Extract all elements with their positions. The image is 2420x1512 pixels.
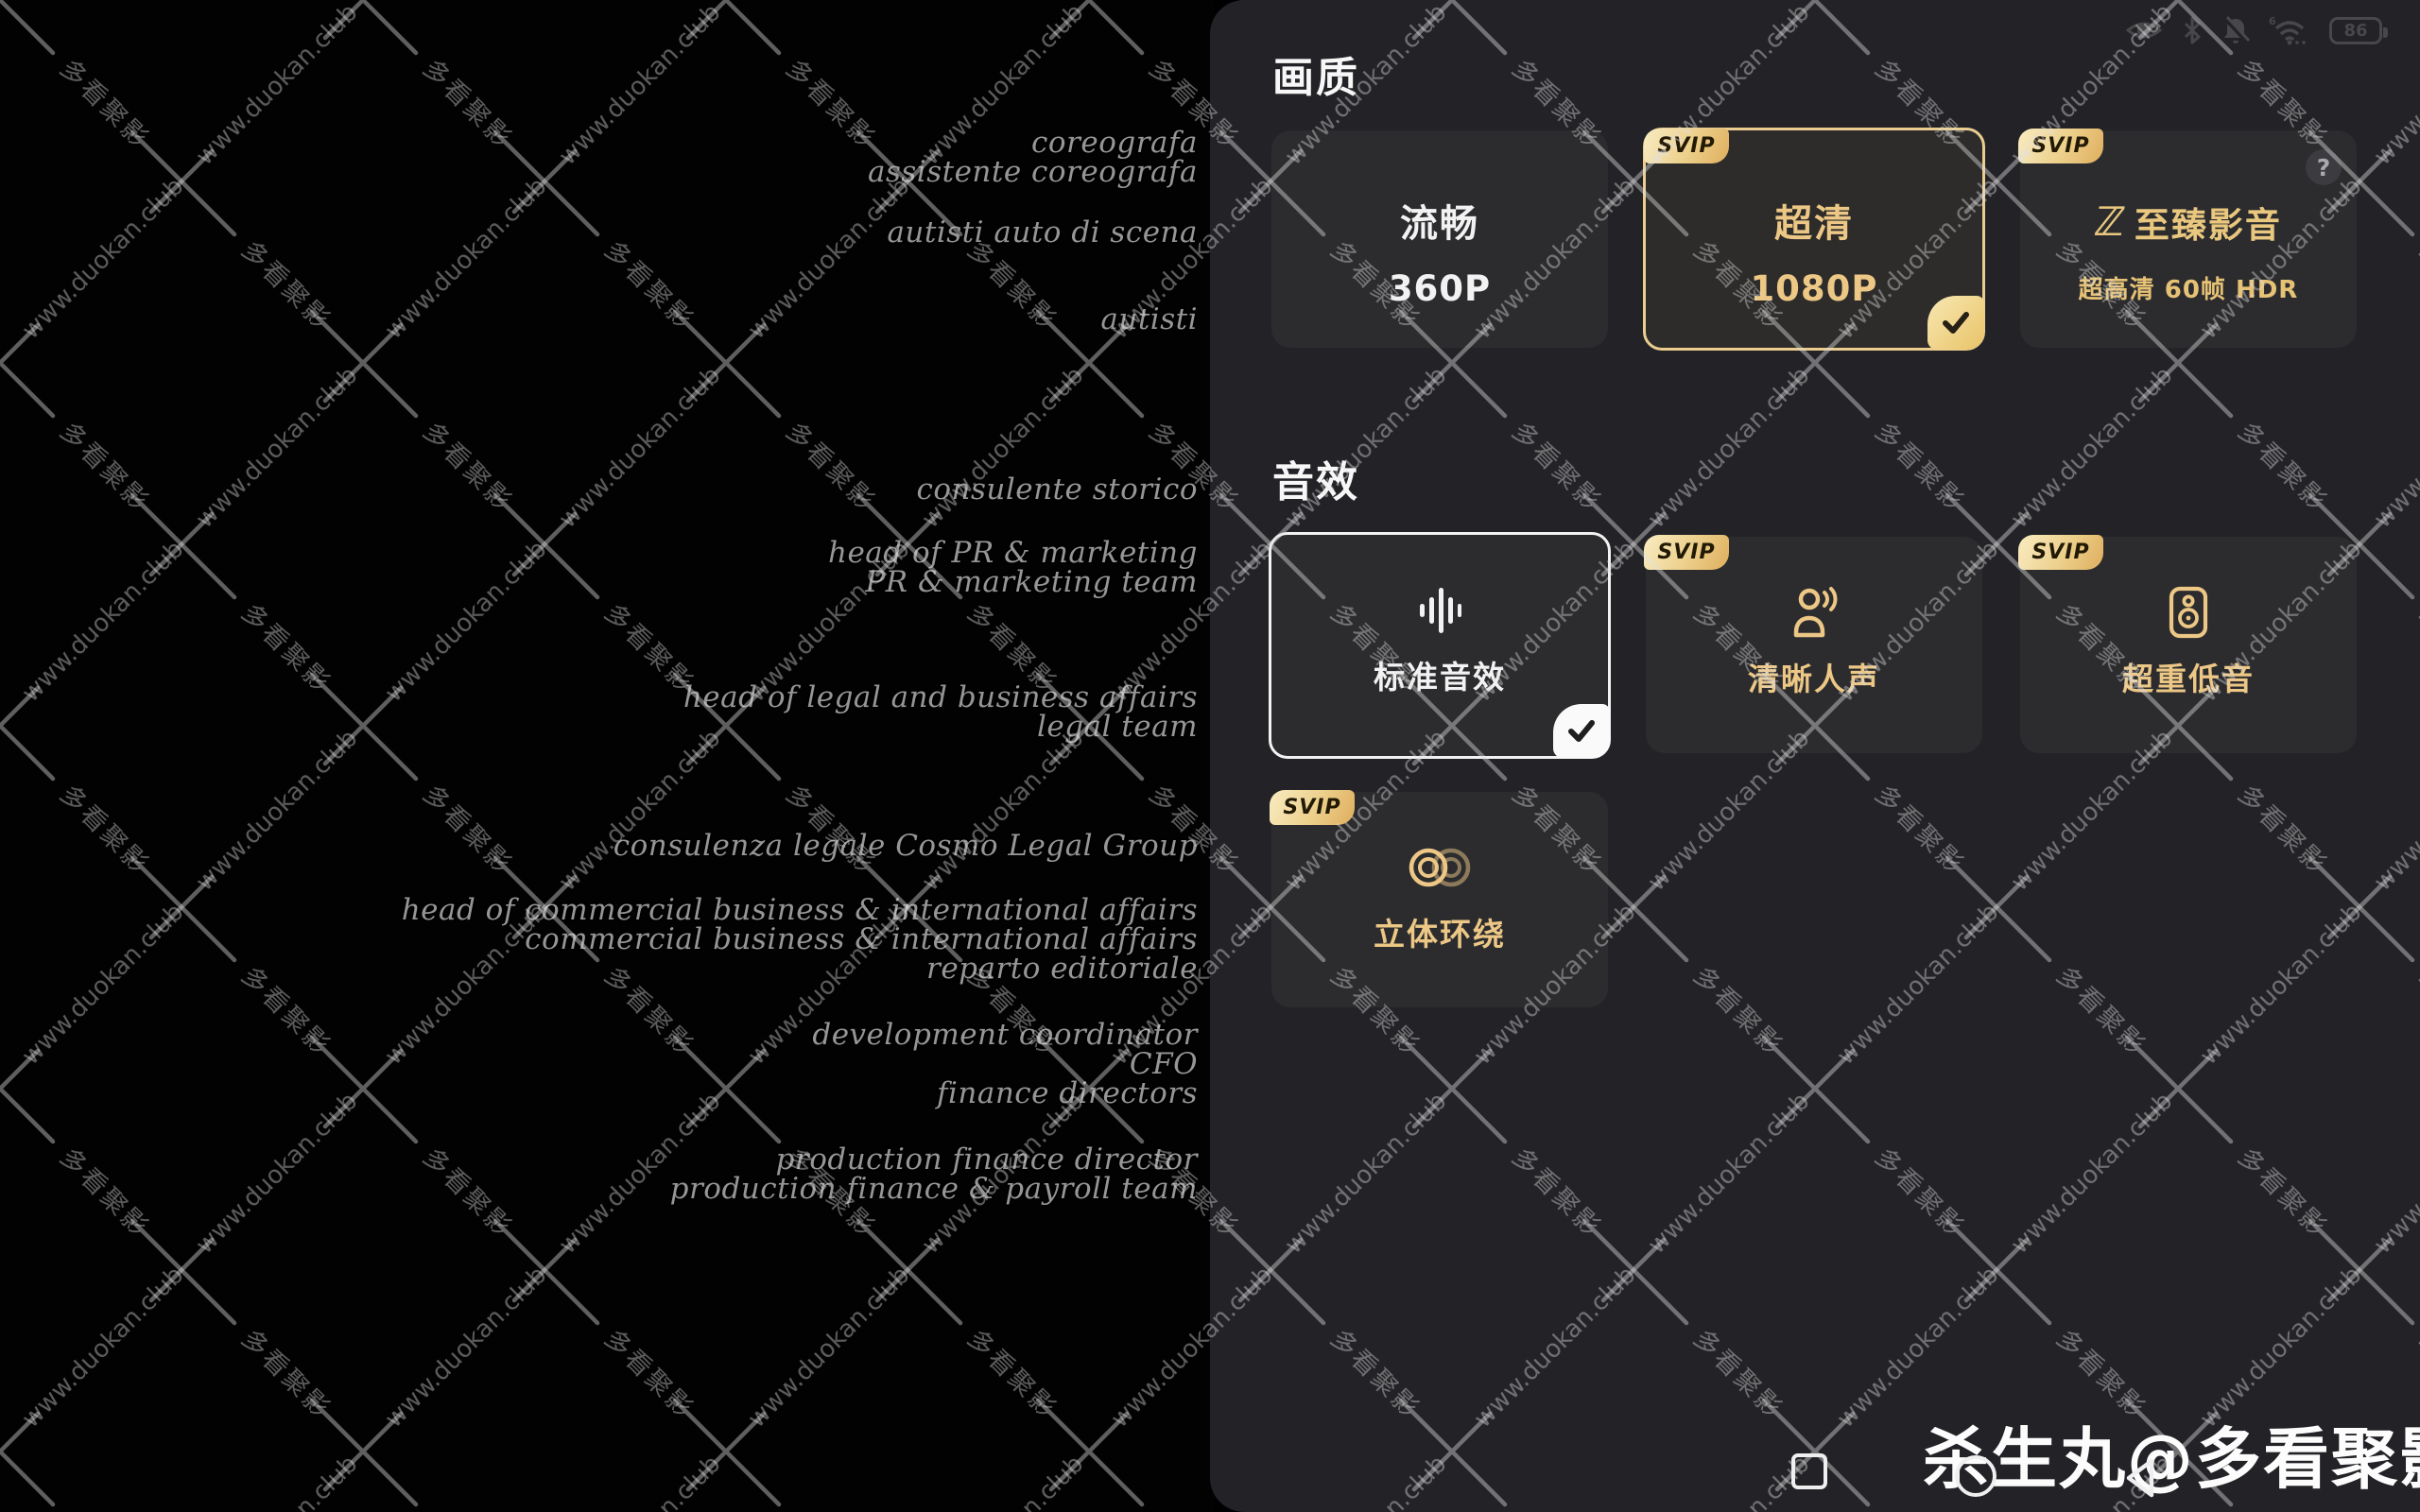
credit-group: consulente storico: [347, 475, 1198, 505]
quality-card-label: 超清: [1774, 193, 1854, 248]
credit-line: development coordinator: [347, 1021, 1198, 1050]
help-icon[interactable]: ?: [2306, 149, 2342, 185]
quality-card-label: 流畅: [1400, 193, 1479, 248]
audio-card-label: 立体环绕: [1374, 909, 1506, 954]
quality-card-sublabel: 1080P: [1750, 268, 1877, 309]
audio-card-label: 清晰人声: [1748, 654, 1880, 699]
credit-group: autisti: [347, 305, 1198, 335]
audio-card-super-bass[interactable]: SVIP 超重低音: [2020, 537, 2357, 753]
credit-group: coreografaassistente coreografa: [347, 129, 1198, 187]
selected-check-icon: [1553, 704, 1610, 758]
surround-rings-icon: [1404, 839, 1476, 896]
svip-badge: SVIP: [1270, 790, 1355, 825]
credit-group: production finance directorproduction fi…: [347, 1145, 1198, 1204]
credit-line: legal team: [347, 713, 1198, 742]
credit-line: reparto editoriale: [347, 954, 1198, 984]
credit-line: head of commercial business & internatio…: [347, 896, 1198, 925]
quality-card-360p[interactable]: 流畅 360P: [1271, 130, 1608, 348]
credit-group: head of legal and business affairslegal …: [347, 683, 1198, 742]
svip-badge: SVIP: [2018, 535, 2103, 570]
credit-line: consulente storico: [347, 475, 1198, 505]
quality-card-1080p-selected[interactable]: SVIP 超清 1080P: [1643, 128, 1985, 351]
audio-card-standard-selected[interactable]: 标准音效: [1269, 532, 1611, 759]
credit-line: commercial business & international affa…: [347, 925, 1198, 954]
bluetooth-icon: [2182, 16, 2203, 44]
credit-line: coreografa: [347, 129, 1198, 158]
premium-av-logo: ℤ: [2092, 202, 2128, 242]
battery-percent: 86: [2343, 21, 2367, 41]
recents-button[interactable]: [1791, 1453, 1827, 1489]
credit-line: CFO: [347, 1050, 1198, 1079]
svip-badge: SVIP: [2018, 129, 2103, 163]
svip-badge: SVIP: [1644, 129, 1729, 163]
credit-line: finance directors: [347, 1079, 1198, 1108]
voice-icon: [1789, 584, 1840, 641]
credit-line: PR & marketing team: [347, 568, 1198, 597]
credit-line: autisti auto di scena: [347, 218, 1198, 248]
quality-card-label: 至臻影音: [2135, 197, 2282, 248]
quality-card-premium-av[interactable]: SVIP ? ℤ 至臻影音 超高清 60帧 HDR: [2020, 130, 2357, 348]
back-button[interactable]: [2117, 1455, 2165, 1504]
equalizer-icon: [1418, 582, 1461, 639]
credit-group: autisti auto di scena: [347, 218, 1198, 248]
mute-bell-icon: [2221, 16, 2250, 44]
wifi-icon: 6: [2269, 15, 2310, 45]
quality-card-sublabel: 360P: [1389, 268, 1491, 309]
battery-indicator: 86: [2329, 17, 2382, 44]
audio-card-clear-voice[interactable]: SVIP 清晰人声: [1646, 537, 1982, 753]
credit-line: head of PR & marketing: [347, 539, 1198, 568]
video-area: coreografaassistente coreografaautisti a…: [0, 0, 1215, 1512]
credit-line: autisti: [347, 305, 1198, 335]
audio-card-label: 超重低音: [2122, 654, 2255, 699]
quality-section-title: 画质: [1272, 43, 1359, 104]
home-button[interactable]: [1955, 1455, 1996, 1497]
credit-group: head of PR & marketingPR & marketing tea…: [347, 539, 1198, 597]
audio-card-label: 标准音效: [1374, 652, 1506, 697]
credit-line: assistente coreografa: [347, 158, 1198, 187]
credit-line: consulenza legale Cosmo Legal Group: [347, 832, 1198, 861]
selected-check-icon: [1927, 296, 1984, 350]
eye-protection-icon: [2125, 16, 2163, 44]
credit-line: production finance & payroll team: [347, 1175, 1198, 1204]
credit-group: consulenza legale Cosmo Legal Group: [347, 832, 1198, 861]
wifi-generation-label: 6: [2269, 15, 2276, 27]
credit-group: development coordinatorCFOfinance direct…: [347, 1021, 1198, 1108]
svip-badge: SVIP: [1644, 535, 1729, 570]
status-bar: 6 86: [2125, 15, 2382, 45]
quality-card-sublabel: 超高清 60帧 HDR: [2079, 270, 2299, 305]
audio-section-title: 音效: [1272, 448, 1359, 508]
credit-group: head of commercial business & internatio…: [347, 896, 1198, 984]
audio-card-stereo-surround[interactable]: SVIP 立体环绕: [1271, 792, 1608, 1007]
subwoofer-icon: [2169, 584, 2208, 641]
settings-panel: 6 86 画质 流畅 360P SVIP 超清 1080P: [1210, 0, 2420, 1512]
credit-line: head of legal and business affairs: [347, 683, 1198, 713]
credit-line: production finance director: [347, 1145, 1198, 1175]
battery-nub: [2383, 27, 2388, 38]
